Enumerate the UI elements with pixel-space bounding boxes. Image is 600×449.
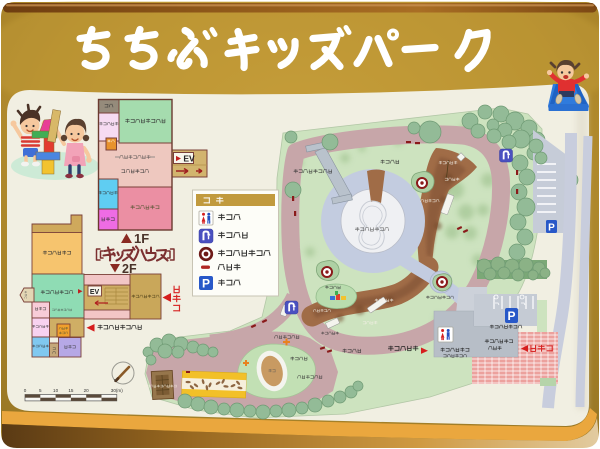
svg-text:P: P: [202, 277, 210, 291]
svg-text:20: 20: [84, 388, 90, 393]
svg-text:P: P: [548, 223, 555, 234]
svg-text:10: 10: [53, 388, 59, 393]
svg-text:0: 0: [24, 388, 27, 393]
svg-text:5: 5: [39, 388, 42, 393]
svg-text:1F: 1F: [134, 231, 149, 246]
svg-text:N: N: [114, 378, 117, 383]
svg-text:P: P: [507, 309, 515, 323]
svg-text:EV: EV: [183, 154, 195, 164]
svg-text:EV: EV: [90, 289, 100, 296]
svg-text:30(m): 30(m): [111, 388, 123, 393]
svg-text:15: 15: [68, 388, 74, 393]
